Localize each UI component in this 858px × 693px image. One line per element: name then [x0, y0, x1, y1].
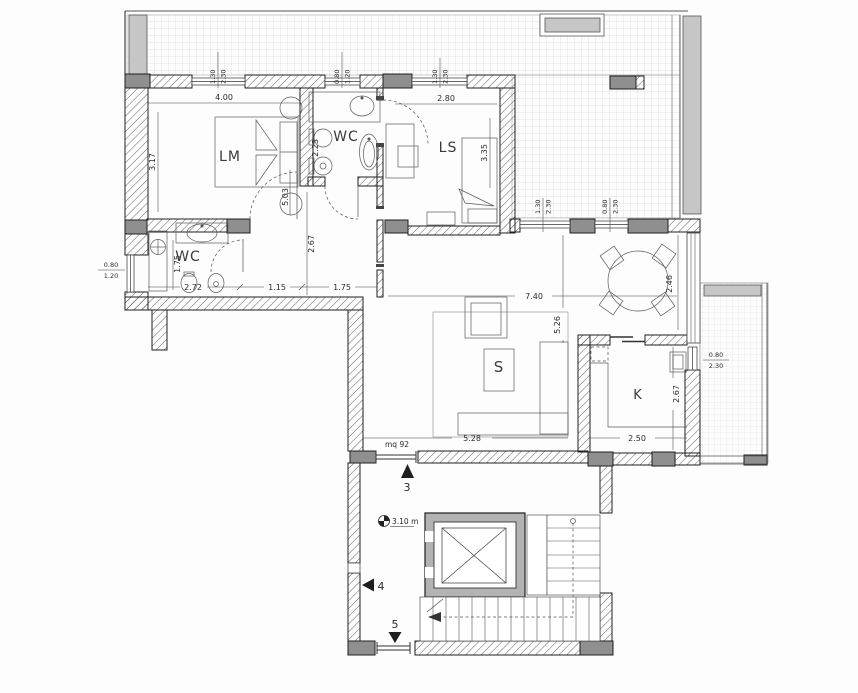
- window-ls-top: [412, 78, 467, 85]
- room-label-wc1: WC: [333, 129, 359, 145]
- kitchen-sliding-door: [610, 337, 645, 342]
- dim-living-depth: 5.26: [553, 316, 562, 334]
- room-label-kitchen: K: [633, 388, 643, 403]
- terrace-pillar: [610, 76, 636, 89]
- winlabel-ls-h: 2.30: [442, 70, 450, 84]
- balcony-corner-pier: [744, 455, 767, 465]
- winlabel-wc2-h: 1.20: [104, 272, 118, 280]
- planter-top: [545, 18, 600, 32]
- elevator: [425, 513, 525, 597]
- stair-marker-up: 3: [401, 464, 414, 494]
- window-stair-left: [348, 563, 360, 573]
- window-wc1-top: [325, 78, 360, 85]
- french-door-balcony: [687, 233, 700, 343]
- entrance-door: [376, 451, 416, 463]
- level-benchmark: 3.10 m: [379, 516, 419, 527]
- stair-bottom-door: [377, 642, 410, 654]
- stair-number-3: 3: [404, 481, 411, 494]
- winlabel-kitchen-h: 2.30: [709, 362, 723, 370]
- annotations: mq 92 3 3.10 m 4 5: [362, 440, 418, 643]
- room-label-lm: LM: [219, 149, 241, 165]
- winlabel-lm-h: 2.30: [220, 70, 228, 84]
- ls-door: [376, 96, 428, 147]
- winlabel-wc2-w: 0.80: [104, 261, 118, 269]
- dim-hall-depth: 2.67: [307, 235, 316, 253]
- dim-lm-total: 5.03: [281, 188, 290, 206]
- level-label: 3.10 m: [392, 517, 418, 526]
- dim-hall-seg1: 1.15: [268, 283, 286, 292]
- corridor-opening-a: [376, 206, 384, 209]
- dim-wc2-width: 2.72: [184, 283, 202, 292]
- dim-hall-seg2: 1.75: [333, 283, 351, 292]
- winlabel-wc2: 0.80 1.20: [98, 261, 125, 280]
- dim-dining-depth: 2.46: [665, 275, 674, 293]
- winlabel-lm-w: 1.30: [209, 70, 217, 84]
- dim-lm-width: 4.00: [215, 93, 233, 102]
- window-kitchen-right: [688, 347, 697, 370]
- window-terrace-b: [595, 221, 628, 228]
- balcony: [700, 283, 768, 465]
- planter-right: [683, 16, 701, 214]
- winlabel-terrace-a-w: 1.30: [534, 200, 542, 214]
- area-label: mq 92: [385, 440, 409, 449]
- dim-wc1-depth: 2.23: [311, 139, 320, 157]
- winlabel-kitchen-w: 0.80: [709, 351, 723, 359]
- dim-kitchen-depth: 2.67: [672, 385, 681, 403]
- winlabel-wc1-w: 0.80: [333, 70, 341, 84]
- winlabel-terrace-a-h: 2.30: [545, 200, 553, 214]
- stair-number-5: 5: [392, 618, 399, 631]
- dim-living-width: 7.40: [525, 292, 543, 301]
- floor-plan-sheet: 4.00 3.17 5.03 2.23 2.80 3.35 1.75 2.72 …: [0, 0, 858, 693]
- dim-kitchen-width: 2.50: [628, 434, 646, 443]
- window-lm-top: [192, 78, 245, 85]
- winlabel-terrace-b-w: 0.80: [601, 200, 609, 214]
- dim-sofa-span: 5.28: [463, 434, 481, 443]
- wc1-door: [325, 186, 358, 219]
- wc2-door: [211, 239, 243, 272]
- window-terrace-a: [520, 221, 570, 228]
- room-label-ls: LS: [439, 140, 458, 156]
- dim-ls-depth: 3.35: [480, 144, 489, 162]
- floor-plan-drawing: 4.00 3.17 5.03 2.23 2.80 3.35 1.75 2.72 …: [0, 0, 858, 693]
- room-label-living: S: [494, 358, 505, 376]
- stair-number-4: 4: [378, 580, 385, 593]
- winlabel-wc1-h: 1.20: [344, 70, 352, 84]
- room-label-wc2: WC: [175, 249, 201, 265]
- dim-ls-width: 2.80: [437, 94, 455, 103]
- dim-lm-depth: 3.17: [148, 153, 157, 171]
- winlabel-ls-w: 1.30: [431, 70, 439, 84]
- stair-marker-down: 5: [389, 618, 402, 643]
- window-wc2-left: [127, 255, 134, 292]
- corridor-opening-b: [376, 264, 384, 267]
- winlabel-terrace-b-h: 2.30: [612, 200, 620, 214]
- terrace: [125, 11, 701, 218]
- stair-marker-mid: 4: [362, 579, 385, 594]
- planter-balcony: [704, 285, 761, 296]
